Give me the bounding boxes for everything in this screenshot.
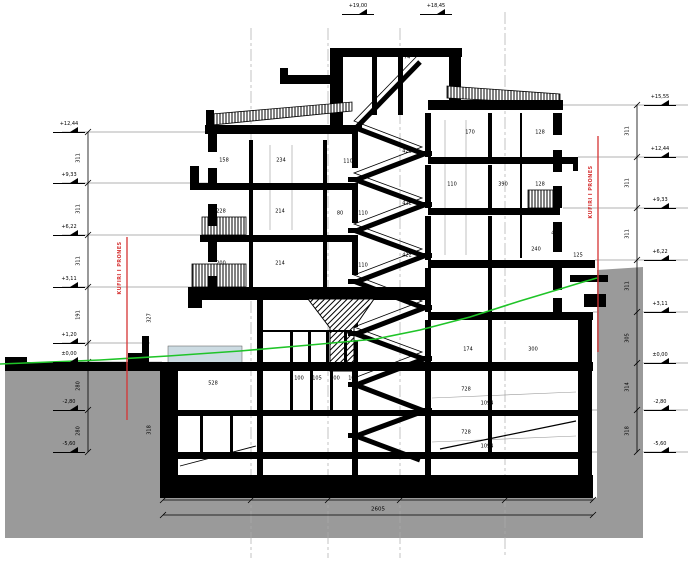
section-drawing [0,0,699,583]
background-edges [270,120,576,442]
entrance [5,336,162,371]
balcony-railing-left-2 [192,264,246,287]
balcony-railing-right [528,190,556,208]
section-drawing-canvas: KUFIRI I PRONES KUFIRI I PRONES +12,44+9… [0,0,699,583]
stair-landings [348,125,432,438]
staircase [348,55,432,460]
